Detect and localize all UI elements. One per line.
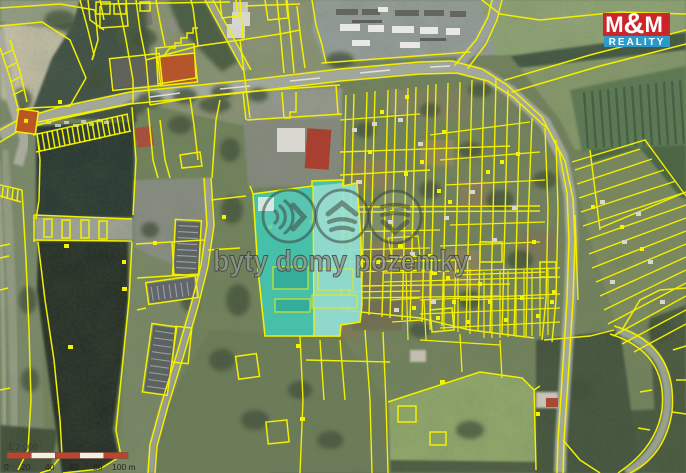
svg-text:REALITY: REALITY [609, 37, 666, 48]
svg-text:80: 80 [93, 462, 103, 472]
svg-text:40: 40 [45, 462, 55, 472]
svg-text:M&M: M&M [605, 8, 663, 40]
svg-text:0: 0 [4, 462, 9, 472]
svg-text:1:2 000: 1:2 000 [8, 442, 38, 452]
svg-text:20: 20 [21, 462, 31, 472]
svg-text:60: 60 [69, 462, 79, 472]
svg-text:100 m: 100 m [112, 462, 136, 472]
svg-text:byty domy pozemky: byty domy pozemky [213, 245, 469, 278]
